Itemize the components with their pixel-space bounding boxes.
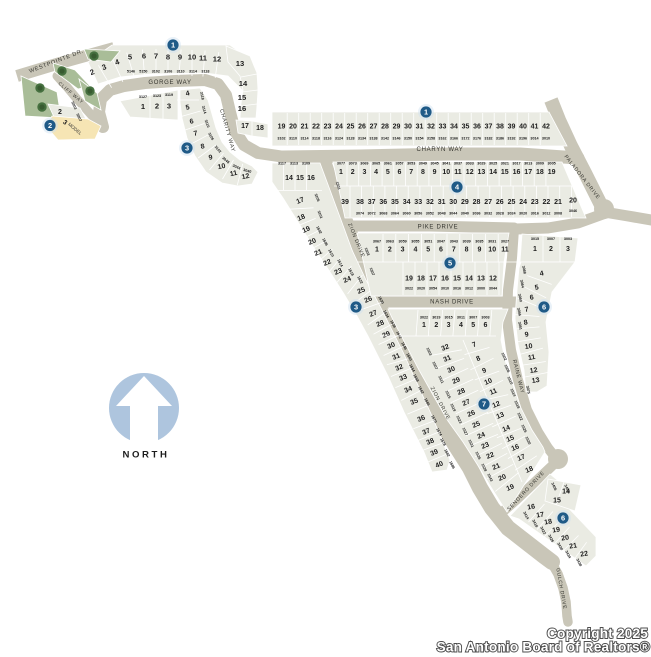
svg-text:37: 37 [368, 199, 376, 206]
svg-text:10: 10 [188, 53, 196, 62]
svg-text:32: 32 [426, 199, 434, 206]
svg-text:20: 20 [569, 198, 577, 205]
svg-text:3: 3 [401, 247, 405, 254]
svg-text:31: 31 [416, 124, 424, 131]
svg-text:20: 20 [561, 534, 570, 542]
svg-text:26: 26 [358, 124, 366, 131]
svg-text:3020: 3020 [519, 212, 527, 216]
svg-text:41: 41 [531, 124, 539, 131]
svg-text:3102: 3102 [152, 70, 160, 74]
svg-text:GORGE WAY: GORGE WAY [148, 80, 191, 86]
svg-text:6: 6 [398, 169, 402, 176]
svg-text:13: 13 [478, 169, 486, 176]
svg-text:18: 18 [544, 518, 553, 526]
svg-text:12: 12 [466, 169, 474, 176]
svg-text:3102: 3102 [277, 137, 285, 141]
svg-text:18: 18 [256, 125, 264, 132]
svg-text:2: 2 [351, 169, 355, 176]
svg-text:12: 12 [489, 276, 497, 283]
svg-text:12: 12 [529, 367, 538, 375]
svg-text:15: 15 [453, 276, 461, 283]
svg-text:3012: 3012 [465, 287, 473, 291]
svg-text:3150: 3150 [404, 137, 412, 141]
svg-text:5150: 5150 [139, 70, 147, 74]
svg-text:12: 12 [213, 55, 221, 64]
svg-text:2: 2 [388, 247, 392, 254]
svg-text:27: 27 [370, 124, 378, 131]
svg-text:16: 16 [441, 276, 449, 283]
svg-text:3114: 3114 [189, 70, 198, 74]
svg-text:37: 37 [485, 124, 493, 131]
svg-text:3057: 3057 [395, 162, 403, 166]
svg-text:3061: 3061 [384, 162, 392, 166]
svg-text:18: 18 [536, 169, 544, 176]
svg-text:3027: 3027 [501, 240, 509, 244]
svg-text:9: 9 [433, 169, 437, 176]
svg-text:2: 2 [434, 322, 438, 329]
svg-text:16: 16 [238, 104, 246, 113]
svg-text:3059: 3059 [398, 240, 406, 244]
svg-text:3162: 3162 [438, 137, 446, 141]
svg-text:17: 17 [536, 511, 545, 519]
svg-text:15: 15 [238, 93, 247, 102]
svg-text:4: 4 [459, 322, 463, 329]
svg-text:3037: 3037 [454, 162, 462, 166]
svg-text:27: 27 [484, 199, 492, 206]
svg-text:3118: 3118 [312, 137, 320, 141]
svg-text:39: 39 [341, 199, 349, 206]
svg-text:24: 24 [519, 199, 527, 206]
svg-text:3068: 3068 [379, 212, 387, 216]
svg-text:3109: 3109 [302, 162, 310, 166]
svg-text:3008: 3008 [554, 212, 562, 216]
svg-text:3036: 3036 [472, 212, 480, 216]
svg-text:NASH DRIVE: NASH DRIVE [430, 300, 474, 306]
svg-text:3073: 3073 [349, 162, 357, 166]
svg-text:9: 9 [477, 247, 481, 254]
svg-text:3134: 3134 [358, 137, 367, 141]
svg-text:3011: 3011 [457, 316, 465, 320]
svg-text:3196: 3196 [519, 137, 527, 141]
svg-text:3009: 3009 [536, 162, 544, 166]
svg-text:13: 13 [477, 276, 485, 283]
svg-text:San Antonio Board of Realtors®: San Antonio Board of Realtors® [437, 640, 650, 655]
svg-text:30: 30 [449, 199, 457, 206]
svg-text:21: 21 [569, 542, 578, 550]
svg-text:3065: 3065 [372, 162, 380, 166]
svg-text:11: 11 [527, 354, 536, 362]
svg-text:16: 16 [513, 169, 521, 176]
svg-text:3031: 3031 [488, 240, 496, 244]
svg-text:22: 22 [543, 199, 551, 206]
svg-text:3: 3 [362, 169, 366, 176]
svg-text:3138: 3138 [369, 137, 377, 141]
svg-text:3176: 3176 [473, 137, 481, 141]
svg-text:3044: 3044 [449, 212, 458, 216]
svg-text:9: 9 [178, 53, 182, 62]
svg-text:3021: 3021 [501, 162, 509, 166]
svg-text:CHARYN WAY: CHARYN WAY [417, 147, 464, 153]
svg-text:14: 14 [285, 175, 293, 182]
svg-text:3128: 3128 [346, 137, 354, 141]
svg-text:8: 8 [166, 53, 170, 62]
svg-text:18: 18 [417, 276, 425, 283]
svg-text:16: 16 [307, 175, 315, 182]
svg-text:33: 33 [439, 124, 447, 131]
svg-text:3029: 3029 [477, 162, 485, 166]
svg-text:3035: 3035 [475, 240, 483, 244]
svg-text:14: 14 [489, 169, 497, 176]
svg-text:4: 4 [374, 169, 378, 176]
svg-text:3: 3 [566, 246, 570, 253]
svg-text:3110: 3110 [289, 137, 297, 141]
svg-text:3158: 3158 [427, 137, 435, 141]
svg-text:32: 32 [427, 124, 435, 131]
svg-text:17: 17 [241, 123, 249, 130]
svg-text:5146: 5146 [127, 70, 135, 74]
svg-text:5: 5 [471, 322, 475, 329]
svg-text:10: 10 [488, 247, 496, 254]
svg-text:3028: 3028 [496, 212, 504, 216]
svg-text:36: 36 [473, 124, 481, 131]
svg-text:3013: 3013 [524, 162, 532, 166]
svg-text:14: 14 [465, 276, 473, 283]
svg-text:33: 33 [414, 199, 422, 206]
svg-text:3003: 3003 [481, 316, 489, 320]
svg-text:3166: 3166 [450, 137, 458, 141]
svg-text:2: 2 [58, 109, 62, 116]
svg-text:3118: 3118 [201, 70, 209, 74]
svg-text:3077: 3077 [337, 162, 345, 166]
svg-text:3123: 3123 [153, 94, 161, 98]
svg-text:17: 17 [524, 169, 532, 176]
svg-text:6: 6 [542, 303, 546, 312]
svg-text:3119: 3119 [165, 93, 173, 97]
svg-text:3043: 3043 [450, 240, 458, 244]
svg-text:1: 1 [171, 41, 175, 50]
svg-text:6: 6 [439, 247, 443, 254]
svg-text:3022: 3022 [405, 287, 413, 291]
svg-text:3113: 3113 [290, 162, 298, 166]
svg-text:3110: 3110 [177, 70, 185, 74]
svg-text:25: 25 [508, 199, 516, 206]
svg-text:29: 29 [393, 124, 401, 131]
svg-text:3072: 3072 [367, 212, 375, 216]
svg-text:3154: 3154 [415, 137, 424, 141]
svg-text:15: 15 [553, 498, 561, 505]
svg-text:3046: 3046 [569, 209, 577, 213]
svg-text:7: 7 [482, 400, 486, 409]
svg-text:5: 5 [448, 259, 452, 268]
svg-text:11: 11 [199, 54, 208, 63]
svg-text:23: 23 [531, 199, 539, 206]
svg-text:23: 23 [324, 124, 332, 131]
svg-text:3032: 3032 [484, 212, 492, 216]
svg-text:22: 22 [580, 550, 589, 558]
svg-text:3051: 3051 [424, 240, 432, 244]
svg-text:3060: 3060 [402, 212, 410, 216]
svg-text:6: 6 [142, 52, 146, 61]
svg-text:21: 21 [554, 199, 562, 206]
svg-text:8: 8 [465, 247, 469, 254]
svg-text:35: 35 [391, 199, 399, 206]
svg-text:3041: 3041 [442, 162, 450, 166]
svg-text:30: 30 [404, 124, 412, 131]
svg-text:11: 11 [454, 169, 462, 176]
svg-text:14: 14 [239, 79, 248, 88]
svg-text:25: 25 [347, 124, 355, 131]
svg-text:3117: 3117 [278, 162, 286, 166]
svg-text:3044: 3044 [489, 287, 498, 291]
svg-text:3003: 3003 [564, 237, 572, 241]
svg-text:1: 1 [339, 169, 343, 176]
svg-text:10: 10 [442, 169, 450, 176]
svg-text:3040: 3040 [461, 212, 469, 216]
svg-text:3045: 3045 [430, 162, 438, 166]
svg-text:38: 38 [496, 124, 504, 131]
svg-text:19: 19 [552, 526, 561, 534]
svg-text:3019: 3019 [432, 316, 440, 320]
svg-text:40: 40 [519, 124, 527, 131]
svg-text:19: 19 [548, 169, 556, 176]
svg-text:3015: 3015 [531, 237, 539, 241]
svg-text:1: 1 [424, 108, 428, 117]
svg-text:3106: 3106 [164, 70, 172, 74]
svg-text:13: 13 [236, 59, 244, 68]
svg-text:3056: 3056 [414, 212, 422, 216]
svg-text:11: 11 [501, 247, 509, 254]
svg-text:3: 3 [354, 303, 358, 312]
svg-text:5: 5 [386, 169, 390, 176]
svg-text:3020: 3020 [417, 287, 425, 291]
svg-text:3055: 3055 [411, 240, 419, 244]
svg-text:13: 13 [531, 377, 540, 385]
svg-text:3052: 3052 [426, 212, 434, 216]
svg-text:3015: 3015 [444, 316, 452, 320]
svg-text:6: 6 [561, 514, 565, 523]
svg-text:1: 1 [375, 247, 379, 254]
svg-text:17: 17 [429, 276, 437, 283]
svg-text:3114: 3114 [301, 137, 310, 141]
svg-text:36: 36 [379, 199, 387, 206]
svg-text:3116: 3116 [324, 137, 332, 141]
svg-text:6: 6 [484, 322, 488, 329]
svg-text:NORTH: NORTH [122, 450, 169, 461]
svg-text:29: 29 [461, 199, 469, 206]
svg-text:3054: 3054 [429, 287, 438, 291]
svg-text:3000: 3000 [477, 287, 485, 291]
svg-text:24: 24 [335, 124, 343, 131]
svg-text:3142: 3142 [381, 137, 389, 141]
svg-text:3016: 3016 [453, 287, 461, 291]
svg-text:3049: 3049 [419, 162, 427, 166]
svg-text:3024: 3024 [507, 212, 516, 216]
svg-text:15: 15 [296, 175, 304, 182]
svg-text:3074: 3074 [356, 212, 365, 216]
svg-text:3033: 3033 [466, 162, 474, 166]
svg-text:3010: 3010 [441, 287, 449, 291]
svg-text:3010: 3010 [542, 137, 550, 141]
svg-text:3069: 3069 [360, 162, 368, 166]
svg-text:42: 42 [542, 124, 550, 131]
svg-text:28: 28 [381, 124, 389, 131]
svg-text:35: 35 [462, 124, 470, 131]
svg-text:20: 20 [289, 124, 297, 131]
svg-text:5: 5 [426, 247, 430, 254]
svg-text:3064: 3064 [391, 212, 400, 216]
svg-text:3172: 3172 [461, 137, 469, 141]
svg-text:3182: 3182 [484, 137, 492, 141]
svg-text:3048: 3048 [437, 212, 445, 216]
svg-text:10: 10 [524, 343, 533, 351]
svg-text:PIKE DRIVE: PIKE DRIVE [418, 225, 459, 231]
svg-text:3146: 3146 [392, 137, 400, 141]
svg-text:2: 2 [155, 102, 159, 111]
svg-text:3192: 3192 [507, 137, 515, 141]
svg-text:3: 3 [447, 322, 451, 329]
svg-text:16: 16 [527, 503, 536, 511]
svg-text:3: 3 [167, 102, 171, 111]
svg-text:3005: 3005 [547, 162, 555, 166]
svg-text:19: 19 [405, 276, 413, 283]
svg-text:28: 28 [473, 199, 481, 206]
svg-text:3022: 3022 [420, 316, 428, 320]
svg-text:7: 7 [452, 247, 456, 254]
svg-text:15: 15 [501, 169, 509, 176]
svg-text:3007: 3007 [469, 316, 477, 320]
svg-text:1: 1 [533, 246, 537, 253]
svg-text:3012: 3012 [542, 212, 550, 216]
svg-text:3016: 3016 [531, 212, 539, 216]
svg-text:3063: 3063 [386, 240, 394, 244]
svg-text:7: 7 [409, 169, 413, 176]
svg-text:38: 38 [356, 199, 364, 206]
svg-text:3039: 3039 [462, 240, 470, 244]
svg-text:34: 34 [450, 124, 458, 131]
svg-text:3127: 3127 [139, 95, 147, 99]
svg-text:2: 2 [549, 246, 553, 253]
svg-text:21: 21 [301, 124, 309, 131]
svg-text:3053: 3053 [407, 162, 415, 166]
svg-text:31: 31 [438, 199, 446, 206]
svg-text:7: 7 [154, 52, 158, 61]
svg-text:2: 2 [48, 121, 52, 130]
svg-text:34: 34 [403, 199, 411, 206]
svg-text:22: 22 [312, 124, 320, 131]
svg-text:3047: 3047 [437, 240, 445, 244]
svg-text:19: 19 [278, 124, 286, 131]
svg-text:3186: 3186 [496, 137, 504, 141]
svg-text:3025: 3025 [489, 162, 497, 166]
svg-text:3017: 3017 [512, 162, 520, 166]
svg-text:3: 3 [185, 144, 189, 153]
svg-text:3014: 3014 [530, 137, 539, 141]
svg-text:3124: 3124 [335, 137, 344, 141]
svg-text:39: 39 [508, 124, 516, 131]
svg-text:4: 4 [413, 247, 417, 254]
svg-text:3007: 3007 [547, 237, 555, 241]
svg-text:1: 1 [422, 322, 426, 329]
svg-text:3067: 3067 [373, 240, 381, 244]
svg-text:8: 8 [421, 169, 425, 176]
svg-text:26: 26 [496, 199, 504, 206]
